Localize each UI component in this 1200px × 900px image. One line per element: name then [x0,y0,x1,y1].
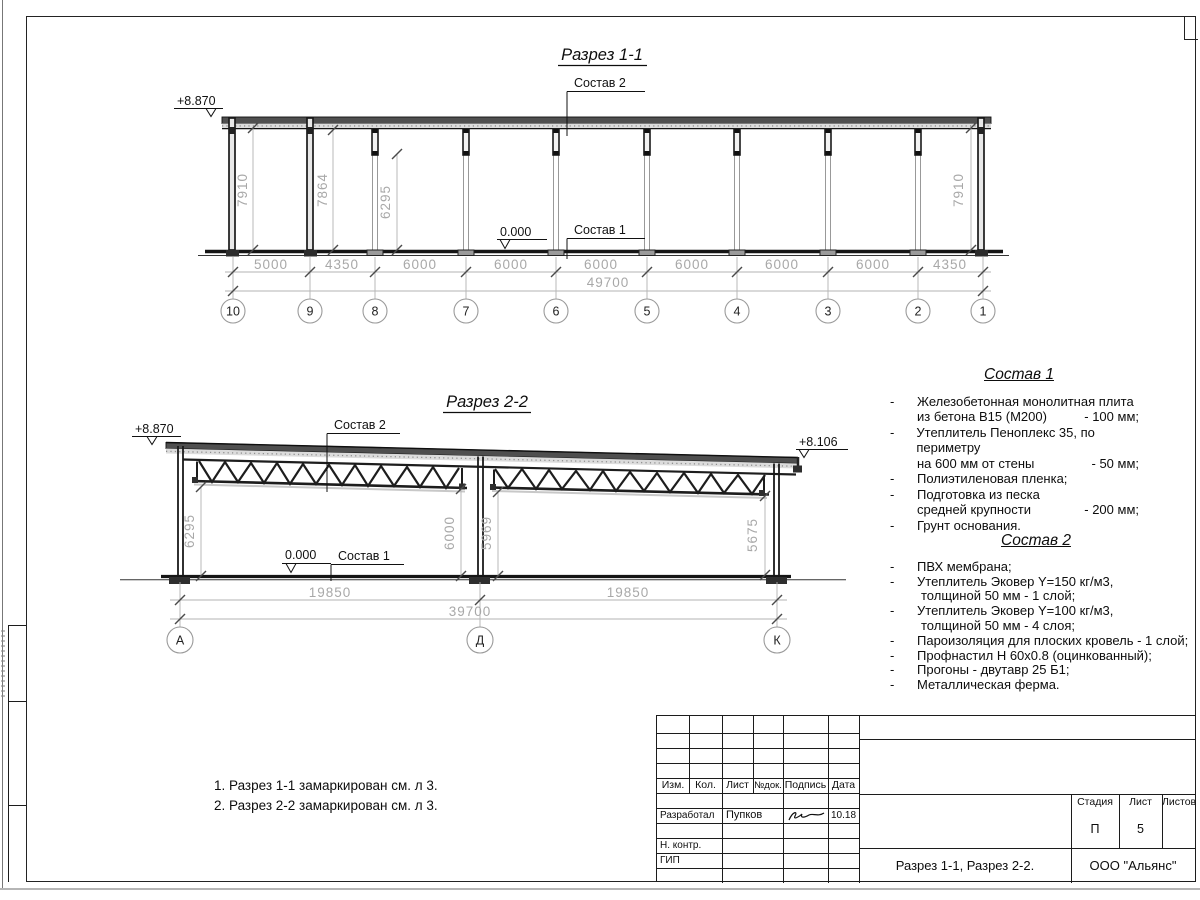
column [910,129,926,256]
note-line: 1. Разрез 1-1 замаркирован см. л 3. [214,776,438,796]
left-stamp-divider [8,701,26,702]
vertical-dimension: 7910 [235,123,258,255]
list-item-line: средней крупности- 200 мм; [917,502,1157,518]
dim-label: 6000 [765,257,799,272]
grid-label: 6 [553,305,560,319]
list-item: -Металлическая ферма. [881,678,1191,693]
left-stamp-line [8,625,9,882]
grid-label: 3 [825,305,832,319]
dim-label: 6000 [856,257,890,272]
section-1-1-title: Разрез 1-1 [561,46,643,64]
dim-label: 7910 [951,173,966,207]
callout-label: Состав 1 [574,223,626,237]
dim-label: 6000 [494,257,528,272]
zero-level-mark: 0.000 [282,548,331,573]
dim-label: 6295 [378,185,393,219]
col-header: Подпись [783,778,828,793]
elevation-label: +8.870 [177,94,216,108]
composition-2-title: Состав 2 [881,534,1191,549]
list-item-line: из бетона В15 (М200)- 100 мм; [917,409,1157,425]
grid-label: 10 [226,305,240,319]
elevation-mark: +8.870 [132,422,181,445]
roof-slab [222,117,991,129]
dimension-total-row: 39700 [170,604,787,624]
vertical-dimension: 6295 [182,482,206,581]
grid-bubble: 4 [725,299,749,323]
dim-label: 4350 [933,257,967,272]
grid-bubble: А [167,627,193,653]
section-title: Разрез 2-2 [443,393,531,413]
composition-1-title: Состав 1 [881,367,1157,383]
section-title: Разрез 1-1 [558,46,647,66]
column [729,129,745,256]
signature-mark [785,809,827,822]
list-item-line: толщиной 50 мм - 1 слой; [921,589,1191,604]
grid-bubble: 3 [816,299,840,323]
grid-bubble: 7 [454,299,478,323]
col-header: №док. [753,778,783,793]
composition-1-block: Состав 1 -Железобетонная монолитная плит… [881,367,1157,533]
dimension-row: 5000 4350 6000 6000 6000 6000 6000 6000 … [225,257,991,277]
dim-label: 19850 [607,585,650,600]
title-block: Изм. Кол. Лист №док. Подпись Дата Разраб… [656,715,1196,882]
floor-line [120,577,846,585]
dim-label: 5675 [745,518,760,552]
column [548,129,564,256]
column [639,129,655,256]
grid-bubble: 1 [971,299,995,323]
grid-bubble: 2 [906,299,930,323]
drawing-sheet: Разрез 1-1 [0,0,1200,900]
sheets-header: Листов [1162,794,1195,810]
list-item: -Утеплитель Пеноплекс 35, по периметру [881,425,1157,456]
list-item-line: на 600 мм от стены- 50 мм; [917,456,1157,472]
grid-bubble: К [764,627,790,653]
grid-label: 1 [980,305,987,319]
dim-label: 6000 [442,516,457,550]
wall [975,118,988,257]
ncontrol-label: Н. контр. [660,838,701,853]
vertical-dimension: 6000 [442,484,466,581]
dim-label: 39700 [449,604,492,619]
notes-block: 1. Разрез 1-1 замаркирован см. л 3. 2. Р… [214,776,438,815]
grid-label: 7 [463,305,470,319]
list-item: -Полиэтиленовая пленка; [881,471,1157,487]
zero-label: 0.000 [500,225,531,239]
col-header: Лист [722,778,753,793]
dim-label: 49700 [587,275,630,290]
grid-label: К [773,634,781,648]
callout-sostav1: Состав 1 [567,223,645,259]
grid-bubble: 10 [221,299,245,323]
dim-label: 7910 [235,173,250,207]
grid-label: Д [476,634,485,648]
list-item: -Прогоны - двутавр 25 Б1; [881,663,1191,678]
developer-label: Разработал [660,808,714,823]
grid-bubble: 5 [635,299,659,323]
vertical-dimension: 7910 [951,123,976,255]
column [774,464,779,578]
gip-label: ГИП [660,853,680,868]
left-stamp-divider [8,625,26,626]
note-line: 2. Разрез 2-2 замаркирован см. л 3. [214,796,438,816]
stage-value: П [1071,812,1119,846]
dim-label: 6000 [403,257,437,272]
elevation-label: +8.870 [135,422,174,436]
list-item: -Утеплитель Эковер Y=100 кг/м3, [881,604,1191,619]
sheet-bottom-edge [0,888,1200,890]
sheet-left-edge [2,0,3,888]
list-item: -Утеплитель Эковер Y=150 кг/м3, [881,575,1191,590]
callout-label: Состав 2 [574,76,626,90]
zero-label: 0.000 [285,548,316,562]
grid-label: 9 [307,305,314,319]
grid-label: А [176,634,185,648]
dim-label: 6000 [675,257,709,272]
list-item: -Пароизоляция для плоских кровель - 1 сл… [881,634,1191,649]
column [178,446,183,577]
list-item: -Профнастил Н 60х0.8 (оцинкованный); [881,649,1191,664]
grid-label: 5 [644,305,651,319]
column [458,129,474,256]
elevation-mark: +8.106 [796,435,848,458]
dim-label: 6000 [584,257,618,272]
vertical-dimension: 5675 [745,491,770,580]
dimension-row: 19850 19850 [170,585,787,605]
roof-slab [166,443,802,473]
vertical-dimension: 6295 [378,149,402,255]
dim-label: 5000 [254,257,288,272]
section-2-2-title: Разрез 2-2 [446,393,528,411]
dim-label: 7864 [315,173,330,207]
floor-line [198,252,1009,256]
col-header: Дата [828,778,859,793]
document-name: Разрез 1-1, Разрез 2-2. [859,848,1071,883]
list-item: -Железобетонная монолитная плита [881,394,1157,410]
organization-name: ООО "Альянс" [1071,848,1195,883]
dim-label: 19850 [309,585,352,600]
grid-bubble: 6 [544,299,568,323]
callout-label: Состав 2 [334,418,386,432]
col-header: Кол. [689,778,722,793]
stage-header: Стадия [1071,794,1119,810]
grid-bubble: Д [467,627,493,653]
date-value: 10.18 [828,808,859,823]
composition-2-block: Состав 2 -ПВХ мембрана; -Утеплитель Эков… [881,534,1191,693]
dim-label: 6295 [182,514,197,548]
elevation-label: +8.106 [799,435,838,449]
section-2-2-drawing: Разрез 2-2 [118,385,863,660]
section-1-1-drawing: Разрез 1-1 [170,40,1015,340]
sheet-header: Лист [1119,794,1162,810]
grid-bubble: 8 [363,299,387,323]
grid-label: 4 [734,305,741,319]
list-item: -ПВХ мембрана; [881,560,1191,575]
list-item: -Подготовка из песка [881,487,1157,503]
vertical-dimension: 7864 [315,125,338,255]
frame-corner-box [1184,16,1198,40]
column [820,129,836,256]
callout-label: Состав 1 [338,549,390,563]
list-item: -Грунт основания. [881,518,1157,534]
dim-label: 4350 [325,257,359,272]
developer-name: Пупков [726,808,762,823]
grid-label: 2 [915,305,922,319]
left-margin-vertical-marks [1,630,5,698]
left-stamp-divider [8,805,26,806]
grid-bubble: 9 [298,299,322,323]
dim-label: 5969 [479,516,494,550]
col-header: Изм. [657,778,689,793]
sheet-value: 5 [1119,812,1162,846]
grid-label: 8 [372,305,379,319]
elevation-mark: +8.870 [174,94,223,117]
zero-level-mark: 0.000 [497,225,547,249]
dimension-total-row: 49700 [225,275,991,296]
list-item-line: толщиной 50 мм - 4 слоя; [921,619,1191,634]
